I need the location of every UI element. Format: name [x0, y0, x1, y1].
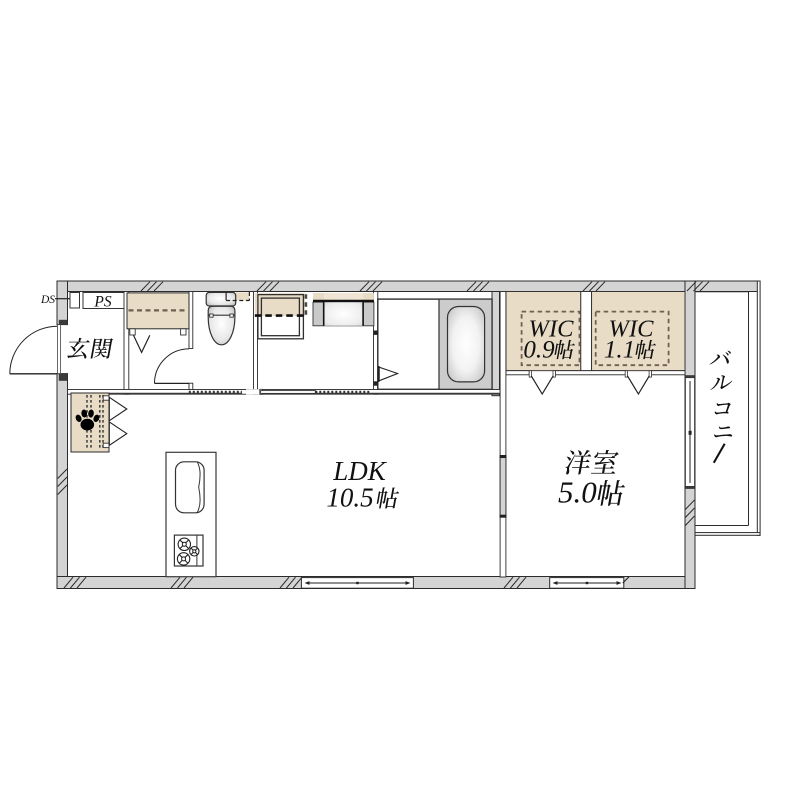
svg-text:0.9: 0.9 [523, 337, 555, 364]
svg-text:10.5: 10.5 [326, 483, 373, 513]
svg-text:1.1: 1.1 [604, 337, 635, 364]
svg-text:5.0: 5.0 [558, 475, 597, 510]
svg-text:PS: PS [93, 293, 111, 310]
svg-text:DS: DS [40, 294, 55, 306]
svg-text:LDK: LDK [332, 456, 388, 486]
